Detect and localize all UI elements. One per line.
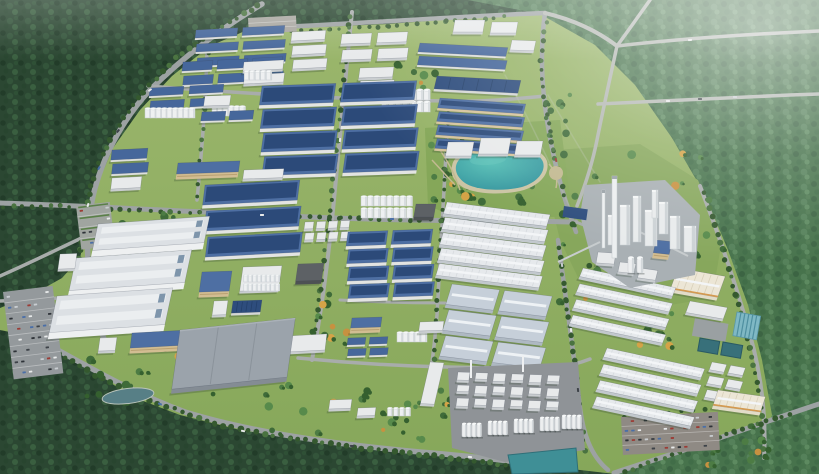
haze-layer: [0, 0, 819, 474]
industrial-park-aerial-render: [0, 0, 819, 474]
haze-corner: [0, 0, 819, 474]
scene-svg: [0, 0, 819, 474]
